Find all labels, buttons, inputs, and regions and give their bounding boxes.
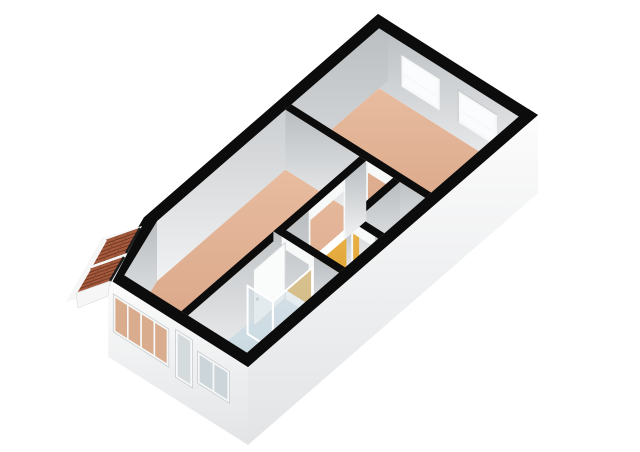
floorplan-scene — [0, 0, 640, 452]
garden-door-pane-1 — [178, 333, 191, 384]
wall-living-door-jamb-l-0 — [344, 179, 346, 241]
floorplan-3d-view — [0, 0, 640, 452]
